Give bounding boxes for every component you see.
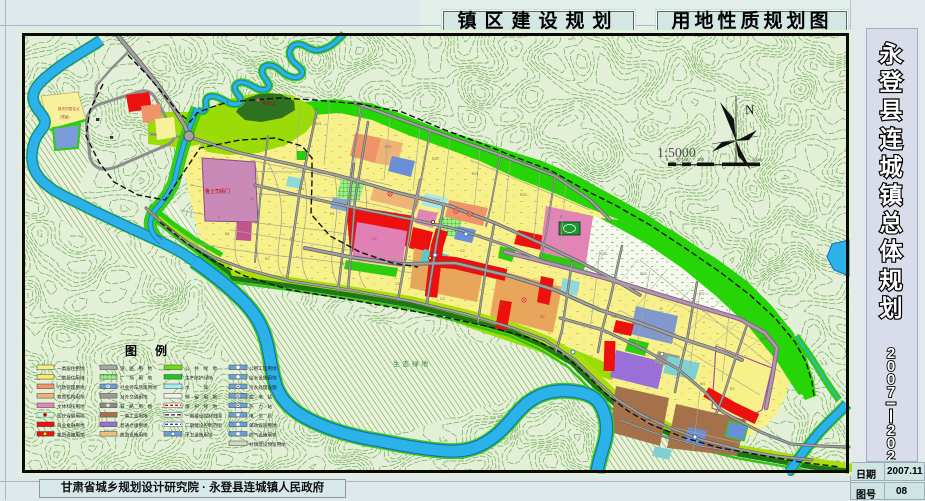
svg-text:7: 7 xyxy=(887,384,895,401)
svg-text:镇: 镇 xyxy=(880,182,903,208)
svg-text:城: 城 xyxy=(880,154,903,180)
svg-text:体: 体 xyxy=(880,238,904,264)
svg-text:划: 划 xyxy=(880,295,903,321)
svg-text:永: 永 xyxy=(880,41,903,67)
svg-text:规: 规 xyxy=(880,267,903,293)
svg-text:2: 2 xyxy=(887,448,895,460)
svg-text:连: 连 xyxy=(880,126,904,152)
svg-text:县: 县 xyxy=(880,97,903,123)
svg-text:总: 总 xyxy=(880,210,903,236)
svg-text:登: 登 xyxy=(879,69,904,95)
